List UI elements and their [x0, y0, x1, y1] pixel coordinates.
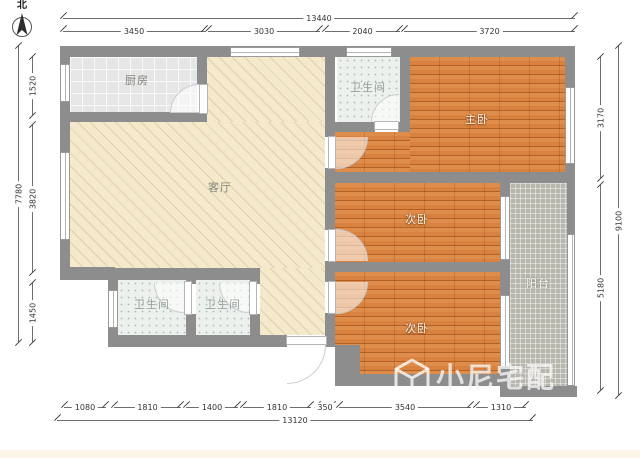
north-indicator: 北: [8, 1, 36, 42]
wall-segment: [197, 57, 207, 84]
sliding-door-bedroom-middle-balcony: [500, 196, 510, 260]
dimension: 3450: [63, 31, 205, 32]
door-swing-arc-entry: [287, 345, 326, 384]
dimension: 5180: [600, 185, 601, 390]
dimension-left-total: 7780: [18, 46, 19, 342]
dimension-bottom-total: 13120: [57, 420, 533, 421]
room-label-living: 客厅: [208, 179, 232, 195]
dimension-top-total: 13440: [63, 18, 575, 19]
window-top-living: [230, 47, 300, 57]
dimension: 1310: [476, 407, 526, 408]
wall-segment: [500, 183, 510, 196]
living-room-floor-main: [70, 122, 325, 268]
dimension: 350: [317, 407, 333, 408]
dimension: 1810: [243, 407, 311, 408]
living-room-floor-top: [207, 57, 325, 122]
wall-segment: [325, 172, 575, 183]
door-leaf-bath-right: [249, 281, 257, 315]
room-label-bed-mid: 次卧: [405, 211, 429, 227]
wall-segment: [567, 183, 575, 234]
dimension: 3720: [404, 31, 575, 32]
door-leaf-kitchen: [199, 84, 208, 114]
window-balcony-right: [567, 234, 575, 386]
door-leaf-bath-left: [184, 281, 192, 315]
window-left-living: [60, 152, 70, 240]
window-top-bath: [346, 47, 392, 57]
dimension: 1810: [114, 407, 181, 408]
wall-segment: [60, 46, 575, 57]
door-leaf-bedroom-bottom: [328, 281, 336, 314]
wall-segment: [60, 112, 207, 122]
wall-segment: [108, 268, 260, 280]
wall-segment: [108, 335, 287, 347]
wall-segment: [325, 122, 375, 132]
dimension: 3820: [32, 125, 33, 272]
door-leaf-master: [328, 136, 336, 169]
room-label-bed-bottom: 次卧: [405, 320, 429, 336]
door-leaf-entry: [286, 336, 327, 345]
dimension: 3170: [600, 57, 601, 178]
dimension-right-total: 9100: [618, 46, 619, 395]
room-label-bath-top: 卫生间: [350, 79, 386, 95]
compass-arrow-icon: [9, 11, 35, 38]
north-label: 北: [8, 1, 36, 11]
page-bottom-strip: [0, 450, 640, 458]
dimension: 2040: [325, 31, 400, 32]
wall-segment: [398, 122, 410, 132]
room-label-bath-right: 卫生间: [205, 296, 241, 312]
living-room-floor-entry: [260, 268, 325, 335]
dimension: 3030: [208, 31, 320, 32]
floor-plan-canvas: 北: [0, 0, 640, 458]
room-label-bath-left: 卫生间: [134, 296, 170, 312]
dimension: 1080: [64, 407, 106, 408]
watermark-text: 小尼宅配: [436, 357, 556, 399]
wall-segment: [500, 260, 510, 295]
dimension: 1520: [32, 57, 33, 115]
watermark: 小尼宅配: [393, 357, 556, 399]
dimension: 1450: [32, 283, 33, 342]
watermark-cube-icon: [393, 357, 431, 399]
window-left-kitchen: [60, 64, 70, 102]
dimension: 3540: [339, 407, 471, 408]
wall-segment: [400, 57, 410, 132]
wall-segment: [60, 267, 115, 280]
wall-segment: [325, 262, 510, 272]
door-leaf-bath-top: [374, 121, 399, 130]
door-leaf-bedroom-middle: [328, 229, 336, 262]
dimension: 1400: [186, 407, 238, 408]
room-label-kitchen: 厨房: [125, 72, 149, 88]
room-label-balcony: 阳台: [526, 275, 550, 291]
window-master-right: [565, 87, 575, 164]
window-bathroom-left: [108, 290, 118, 328]
room-label-master: 主卧: [465, 111, 489, 127]
